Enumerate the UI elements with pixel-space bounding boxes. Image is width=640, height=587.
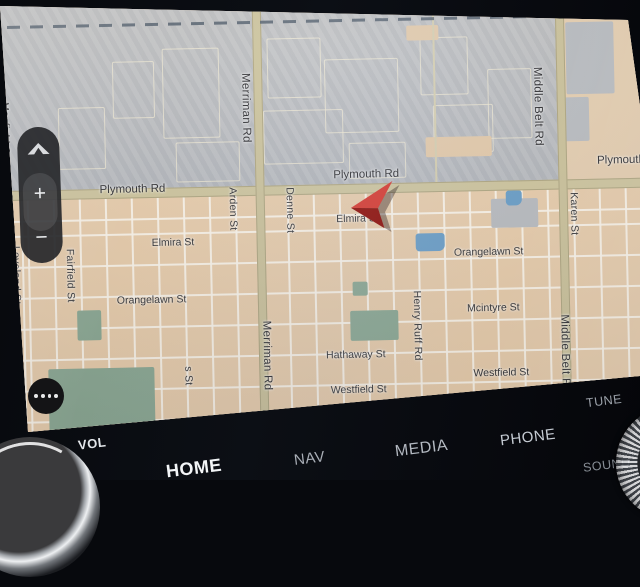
tune-knob[interactable] <box>616 406 640 520</box>
street-label: Mayfield St <box>0 102 12 157</box>
hardkey-home[interactable]: HOME <box>165 455 223 483</box>
hardkey-tune[interactable]: TUNE <box>585 392 622 410</box>
zoom-in-button[interactable]: + <box>18 178 61 209</box>
vehicle-position-arrow-icon <box>348 178 401 235</box>
map-block <box>162 48 221 139</box>
street-label: Arden St <box>227 187 240 231</box>
street-label: Loveland St <box>10 246 23 305</box>
street-label: Westfield St <box>473 366 529 379</box>
street-label: olo <box>14 390 26 405</box>
hardkey-media[interactable]: MEDIA <box>394 437 449 461</box>
map-patch <box>565 21 614 94</box>
street-label: Merriman Rd <box>239 73 252 143</box>
map-zoom-control: + − <box>17 126 64 263</box>
ellipsis-icon <box>48 394 52 398</box>
ellipsis-icon <box>54 394 58 398</box>
map-block <box>266 37 321 98</box>
map-block <box>487 68 532 139</box>
infotainment-unit: Plymouth RdPlymouth RdPlymouth RdElmira … <box>0 0 640 480</box>
hardkey-nav[interactable]: NAV <box>293 448 326 469</box>
park-area <box>350 310 399 341</box>
street-label: Middle Belt Rd <box>558 314 572 393</box>
map-patch <box>565 97 590 141</box>
street-label: Westfield St <box>331 383 387 396</box>
map-canvas[interactable]: Plymouth RdPlymouth RdPlymouth RdElmira … <box>0 0 640 480</box>
street-label: Fairfield St <box>64 249 77 303</box>
zoom-out-button[interactable]: − <box>20 222 63 253</box>
park-area <box>353 282 368 296</box>
street-label: Plymouth Rd <box>597 153 640 166</box>
hardkey-volume[interactable]: VOL <box>77 434 107 452</box>
street-label: Mcintyre St <box>467 301 520 314</box>
street-label: Merriman Rd <box>260 321 273 391</box>
map-urban-area <box>0 0 566 202</box>
ellipsis-icon <box>41 394 45 398</box>
street-label: Hathaway St <box>326 348 386 361</box>
street-label: Plymouth Rd <box>99 183 165 196</box>
volume-knob[interactable] <box>0 437 100 577</box>
park-area <box>77 310 102 340</box>
infotainment-screen: Plymouth RdPlymouth RdPlymouth RdElmira … <box>0 0 640 480</box>
map-block <box>419 36 468 95</box>
street-label: Denne St <box>284 187 297 233</box>
map-block <box>58 107 106 170</box>
street-label: Karen St <box>568 192 581 236</box>
street-label: s St <box>182 366 194 386</box>
street-label: Orangelawn St <box>454 245 524 258</box>
street-label: Henry Ruff Rd <box>411 290 424 360</box>
map-block <box>176 141 241 182</box>
ellipsis-icon <box>34 394 38 398</box>
pan-up-button[interactable] <box>17 134 60 165</box>
water-pond <box>416 233 445 252</box>
map-block <box>324 58 400 134</box>
street-label: Orangelawn St <box>117 293 187 306</box>
park-area <box>48 367 155 431</box>
chevron-up-icon <box>27 143 49 158</box>
street-label: Elmira St <box>152 236 195 249</box>
water-pond <box>506 190 522 205</box>
more-options-button[interactable] <box>28 378 64 414</box>
map-block <box>112 61 155 119</box>
street-label: Middle Belt Rd <box>531 67 545 146</box>
hardkey-phone[interactable]: PHONE <box>499 426 556 450</box>
